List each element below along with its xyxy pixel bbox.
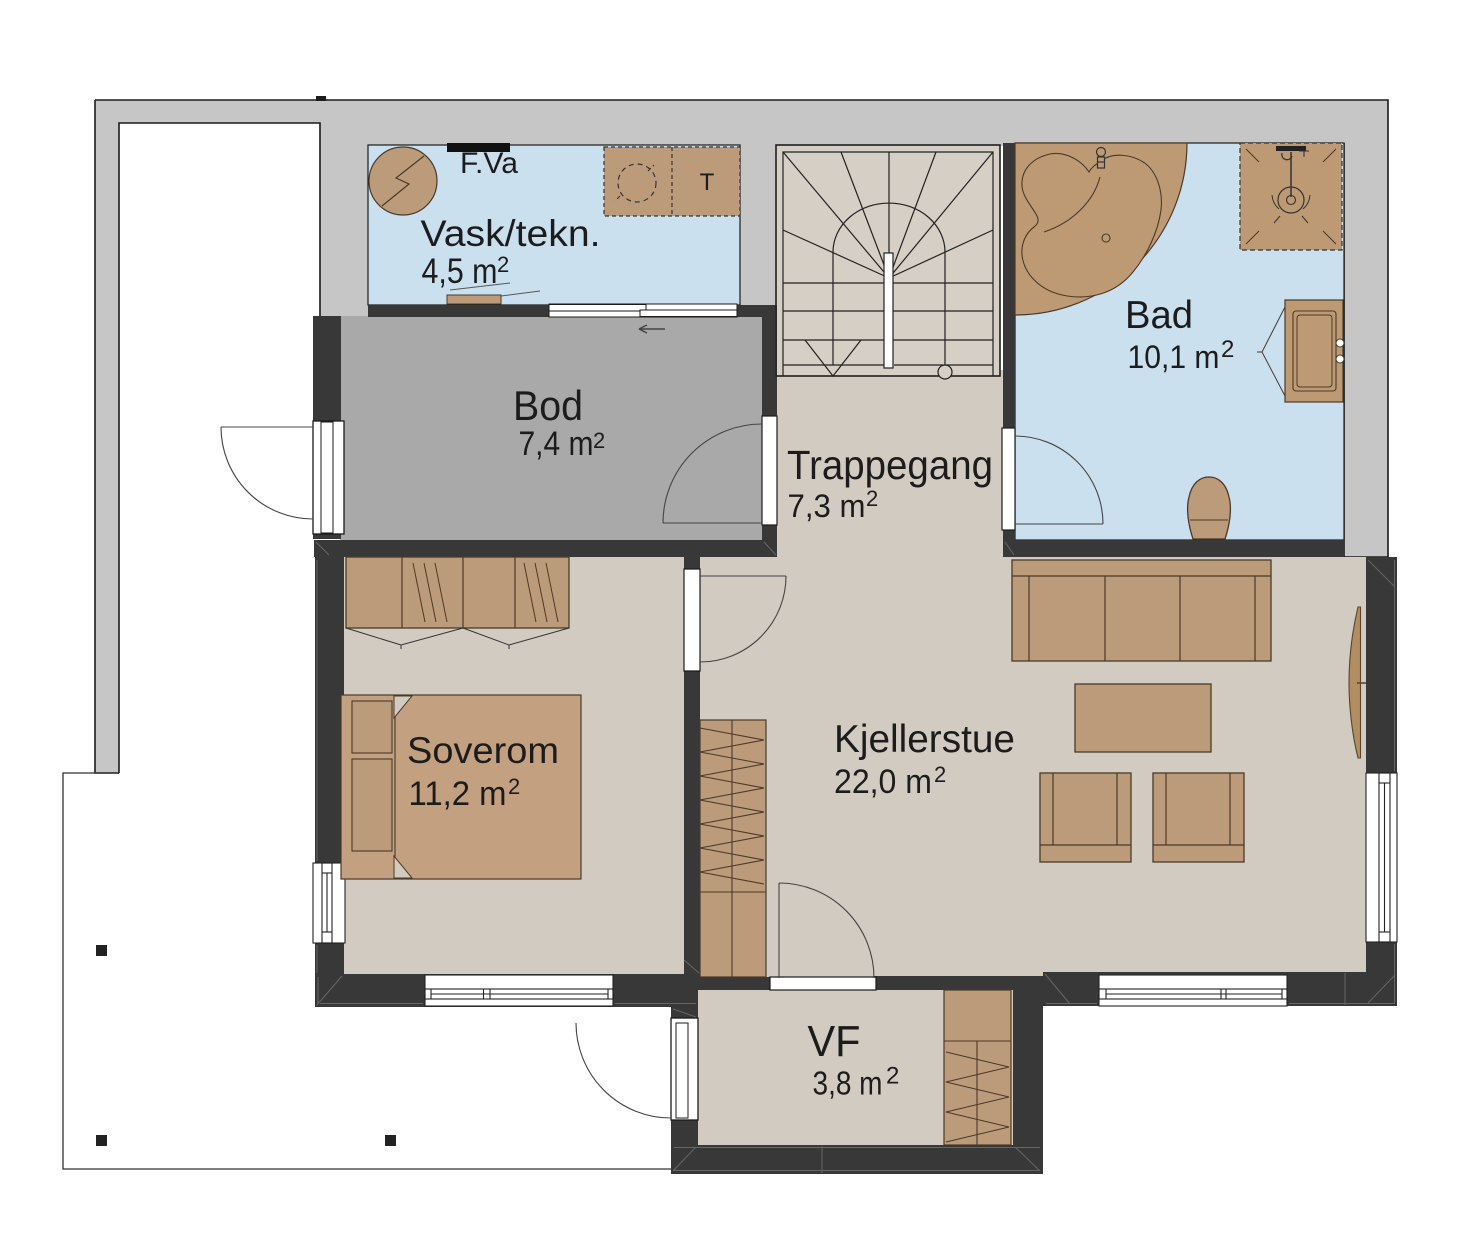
svg-text:11,2 m: 11,2 m [409, 775, 507, 813]
svg-text:Kjellerstue: Kjellerstue [834, 718, 1015, 761]
svg-text:Soverom: Soverom [407, 730, 559, 771]
svg-text:7,4 m: 7,4 m [519, 425, 594, 463]
svg-text:2: 2 [593, 428, 605, 453]
svg-text:Trappegang: Trappegang [787, 442, 993, 488]
svg-text:4,5 m: 4,5 m [422, 252, 498, 291]
svg-text:7,3 m: 7,3 m [788, 488, 866, 524]
svg-text:22,0 m: 22,0 m [834, 763, 932, 801]
svg-text:2: 2 [497, 252, 509, 277]
svg-text:Vask/tekn.: Vask/tekn. [421, 213, 601, 254]
svg-text:2: 2 [866, 486, 878, 511]
svg-text:VF: VF [808, 1017, 861, 1066]
svg-text:2: 2 [1221, 336, 1234, 363]
svg-text:Bod: Bod [513, 382, 583, 429]
svg-text:2: 2 [886, 1063, 899, 1090]
svg-text:T: T [700, 169, 715, 196]
svg-text:F.Va: F.Va [460, 147, 518, 180]
svg-text:2: 2 [508, 774, 520, 799]
svg-text:10,1 m: 10,1 m [1128, 339, 1220, 375]
svg-text:Bad: Bad [1125, 294, 1193, 337]
svg-text:3,8 m: 3,8 m [813, 1065, 883, 1102]
svg-text:2: 2 [934, 762, 946, 787]
